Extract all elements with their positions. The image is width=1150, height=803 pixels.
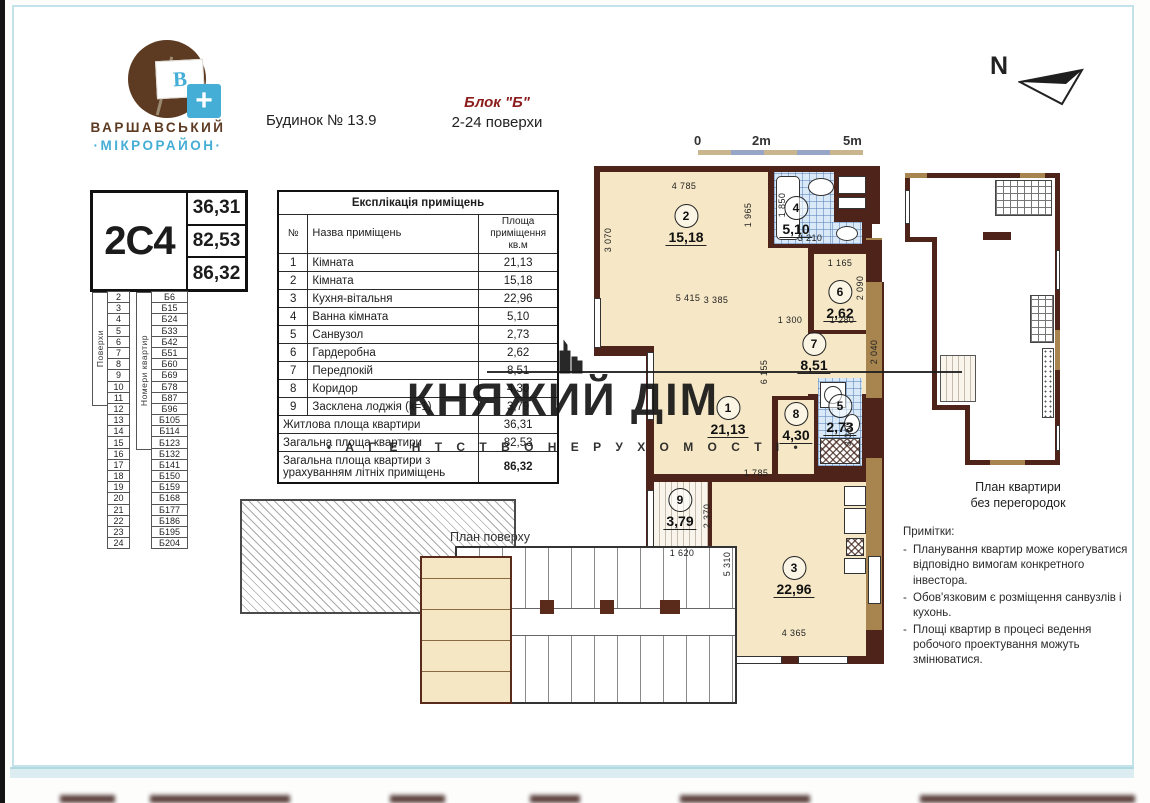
room-1-floor [654,290,772,474]
col-header-name: Назва приміщень [308,215,479,254]
apartments-column-header: Номери квартир [136,292,152,450]
room-area: 4,30 [779,427,812,444]
building-number: Будинок № 13.9 [266,112,376,129]
floors-column-header: Поверхи [92,292,108,406]
scale-bar [698,150,863,155]
dimension: 3 360 [843,422,853,447]
notes-block: Примітки: -Планування квартир може корег… [903,525,1131,669]
room-label-8: 8 4,30 [779,402,812,444]
explication-cell: 9 [278,398,308,416]
logo-flag-letter: В [172,66,187,92]
floor-plan-sheet: В + ВАРШАВСЬКИЙ ·МІКРОРАЙОН· Будинок № 1… [0,0,1150,803]
scale-segment [830,150,863,155]
summary-living-label: Житлова площа квартири [278,416,479,434]
rp-wall [1055,173,1060,465]
summary-total-value: 82,53 [479,434,558,452]
north-label: N [990,52,1008,81]
room-number: 6 [828,280,852,304]
explication-row: 6Гардеробна2,62 [278,344,558,362]
explication-table: Експлікація приміщень № Назва приміщень … [277,190,559,484]
scan-blob [680,795,810,803]
rp-window [1056,250,1060,290]
room-area: 21,13 [707,421,748,438]
floors-range: 2-24 поверхи [432,114,562,131]
col-header-num: № [278,215,308,254]
floor-plan-label: План поверху [400,530,580,544]
dimension: 3 385 [704,295,729,305]
room-number: 8 [784,402,808,426]
scan-blob [920,795,1135,803]
room-number: 2 [674,204,698,228]
rp-loggia [940,355,976,402]
explication-row: 1Кімната21,13 [278,254,558,272]
toilet [836,226,858,241]
scan-edge [0,0,5,803]
explication-cell: Передпокій [308,362,479,380]
explication-cell: 15,18 [479,272,558,290]
explication-cell: Ванна кімната [308,308,479,326]
room-label-7: 7 8,51 [797,332,830,374]
dimension: 5 415 [676,293,701,303]
explication-cell: Кімната [308,272,479,290]
plan-walls [866,398,882,458]
explication-cell: 4 [278,308,308,326]
logo-plus-icon: + [187,84,221,118]
explication-cell: 21,13 [479,254,558,272]
plan-walls [866,240,882,282]
room-area: 22,96 [773,581,814,598]
north-arrow-icon [1018,62,1088,110]
explication-cell: 4,30 [479,380,558,398]
explication-cell: 2 [278,272,308,290]
rp-hatch-zone [1030,295,1054,343]
summary-full-value: 86,32 [479,452,558,484]
room-label-3: 3 22,96 [773,556,814,598]
room-number: 9 [668,488,692,512]
dimension: 3 070 [603,228,613,253]
kitchen-vent-shaft [846,538,864,556]
unit-total-area: 82,53 [188,226,245,259]
scale-segment [797,150,830,155]
kitchen-counter [844,486,866,506]
window [647,352,654,420]
unit-code: 2С4 [93,193,186,289]
notes-title: Примітки: [903,525,1131,540]
logo-wordmark: ВАРШАВСЬКИЙ ·МІКРОРАЙОН· [48,120,268,153]
note-item: -Планування квартир може корегуватися ві… [903,543,1131,589]
room-label-9: 9 3,79 [663,488,696,530]
shelf [838,197,866,209]
window [868,556,881,604]
scale-end: 5m [843,133,862,148]
rp-wall-tan [1020,173,1045,178]
explication-row: 8Коридор4,30 [278,380,558,398]
vent-shaft [820,438,860,464]
rp-wall-stub [983,232,1011,240]
window [594,298,601,348]
dimension: 1 785 [744,468,769,478]
floor-plan-shaft [660,600,680,614]
logo-title-line2: ·МІКРОРАЙОН· [48,138,268,153]
dimension: 1 965 [743,203,753,228]
dimension: 5 310 [722,552,732,577]
apartments-column: Б6Б15Б24Б33Б42Б51Б60Б69Б78Б87Б96Б105Б114… [151,292,188,549]
room-area: 8,51 [797,357,830,374]
col-header-area: Площа приміщення кв.м [479,215,558,254]
rp-hatch-zone [995,180,1052,216]
shelf [838,176,866,194]
note-text: Планування квартир може корегуватися від… [913,543,1131,589]
dimension: 6 155 [759,360,769,385]
unit-full-area: 86,32 [188,258,245,289]
rp-wall-tan [990,460,1025,465]
summary-full-label: Загальна площа квартири з урахуванням лі… [278,452,479,484]
plan-walls [828,166,880,224]
dimension: 2 370 [702,504,712,529]
dimension: 1 850 [777,193,787,218]
explication-cell: 7 [278,362,308,380]
explication-cell: 3,79 [479,398,558,416]
apartment-cell: Б204 [151,537,188,549]
logo-plus-glyph: + [195,86,213,116]
rp-dotted-zone [1042,348,1054,418]
apartments-header-text: Номери квартир [139,335,149,406]
explication-row: 2Кімната15,18 [278,272,558,290]
explication-cell: 8,51 [479,362,558,380]
scan-blob [60,795,115,803]
dimension: 1 280 [830,315,855,325]
rp-window [1056,425,1060,451]
dimension: 1 300 [778,315,803,325]
explication-cell: 5 [278,326,308,344]
dimension: 3 210 [798,233,823,243]
rp-wall [932,237,937,410]
dimension: 2 090 [855,276,865,301]
sink [808,178,834,196]
summary-living-value: 36,31 [479,416,558,434]
explication-row: 9Засклена лоджія (k=1)3,79 [278,398,558,416]
note-text: Площі квартир в процесі ведення робочого… [913,623,1131,669]
dimension: 1 620 [670,548,695,558]
rp-wall-tan [1055,330,1060,370]
page-frame-band [10,767,1134,778]
floor-cell: 24 [107,537,130,549]
summary-total-label: Загальна площа квартири [278,434,479,452]
unit-card: 2С4 36,31 82,53 86,32 [90,190,248,292]
room-number: 1 [716,396,740,420]
scale-zero: 0 [694,133,701,148]
explication-row: 7Передпокій8,51 [278,362,558,380]
scan-blob [530,795,580,803]
kitchen-counter [844,558,866,574]
note-bullet: - [903,623,913,669]
room-label-2: 2 15,18 [665,204,706,246]
explication-cell: 5,10 [479,308,558,326]
highlighted-unit [420,556,512,704]
floors-column: 23456789101112131415161718192021222324 [107,292,130,549]
scale-segment [731,150,764,155]
scale-mid: 2m [752,133,771,148]
explication-cell: Гардеробна [308,344,479,362]
explication-title: Експлікація приміщень [278,191,558,215]
rp-caption-line1: План квартири [938,480,1098,494]
explication-cell: 22,96 [479,290,558,308]
floor-plan-shaft [600,600,614,614]
room-number: 7 [802,332,826,356]
note-text: Обов'язковим є розміщення санвузлів і ку… [913,591,1131,621]
logo-title-line1: ВАРШАВСЬКИЙ [48,120,268,135]
explication-cell: 6 [278,344,308,362]
explication-cell: Кімната [308,254,479,272]
dimension: 2 040 [869,340,879,365]
scan-blob [390,795,445,803]
scan-blob [150,795,290,803]
kitchen-sink [844,508,866,534]
room-label-1: 1 21,13 [707,396,748,438]
explication-row: 5Санвузол2,73 [278,326,558,344]
explication-cell: 8 [278,380,308,398]
explication-cell: Засклена лоджія (k=1) [308,398,479,416]
room-number: 4 [784,196,808,220]
explication-cell: Санвузол [308,326,479,344]
unit-living-area: 36,31 [188,193,245,226]
explication-cell: Коридор [308,380,479,398]
note-item: -Площі квартир в процесі ведення робочог… [903,623,1131,669]
explication-cell: 2,62 [479,344,558,362]
note-item: -Обов'язковим є розміщення санвузлів і к… [903,591,1131,621]
unit-areas: 36,31 82,53 86,32 [186,193,245,289]
note-bullet: - [903,543,913,589]
explication-row: 3Кухня-вітальня22,96 [278,290,558,308]
explication-cell: 2,73 [479,326,558,344]
explication-cell: 3 [278,290,308,308]
rp-wall-tan [905,173,927,178]
floor-plan-shaft [540,600,554,614]
block-label: Блок "Б" [432,94,562,111]
explication-cell: Кухня-вітальня [308,290,479,308]
rp-window [905,190,910,224]
rp-wall [965,405,970,465]
scale-segment [698,150,731,155]
explication-cell: 1 [278,254,308,272]
explication-row: 4Ванна кімната5,10 [278,308,558,326]
note-bullet: - [903,591,913,621]
room-area: 3,79 [663,513,696,530]
dimension: 4 365 [782,628,807,638]
dimension: 4 785 [672,181,697,191]
window [798,656,848,664]
room-number: 3 [782,556,806,580]
rp-caption-line2: без перегородок [938,496,1098,510]
notes-items: -Планування квартир може корегуватися ві… [903,543,1131,668]
dimension: 1 165 [828,258,853,268]
room-number: 5 [828,394,852,418]
scale-segment [764,150,797,155]
room-area: 15,18 [665,229,706,246]
floors-header-text: Поверхи [95,330,105,367]
